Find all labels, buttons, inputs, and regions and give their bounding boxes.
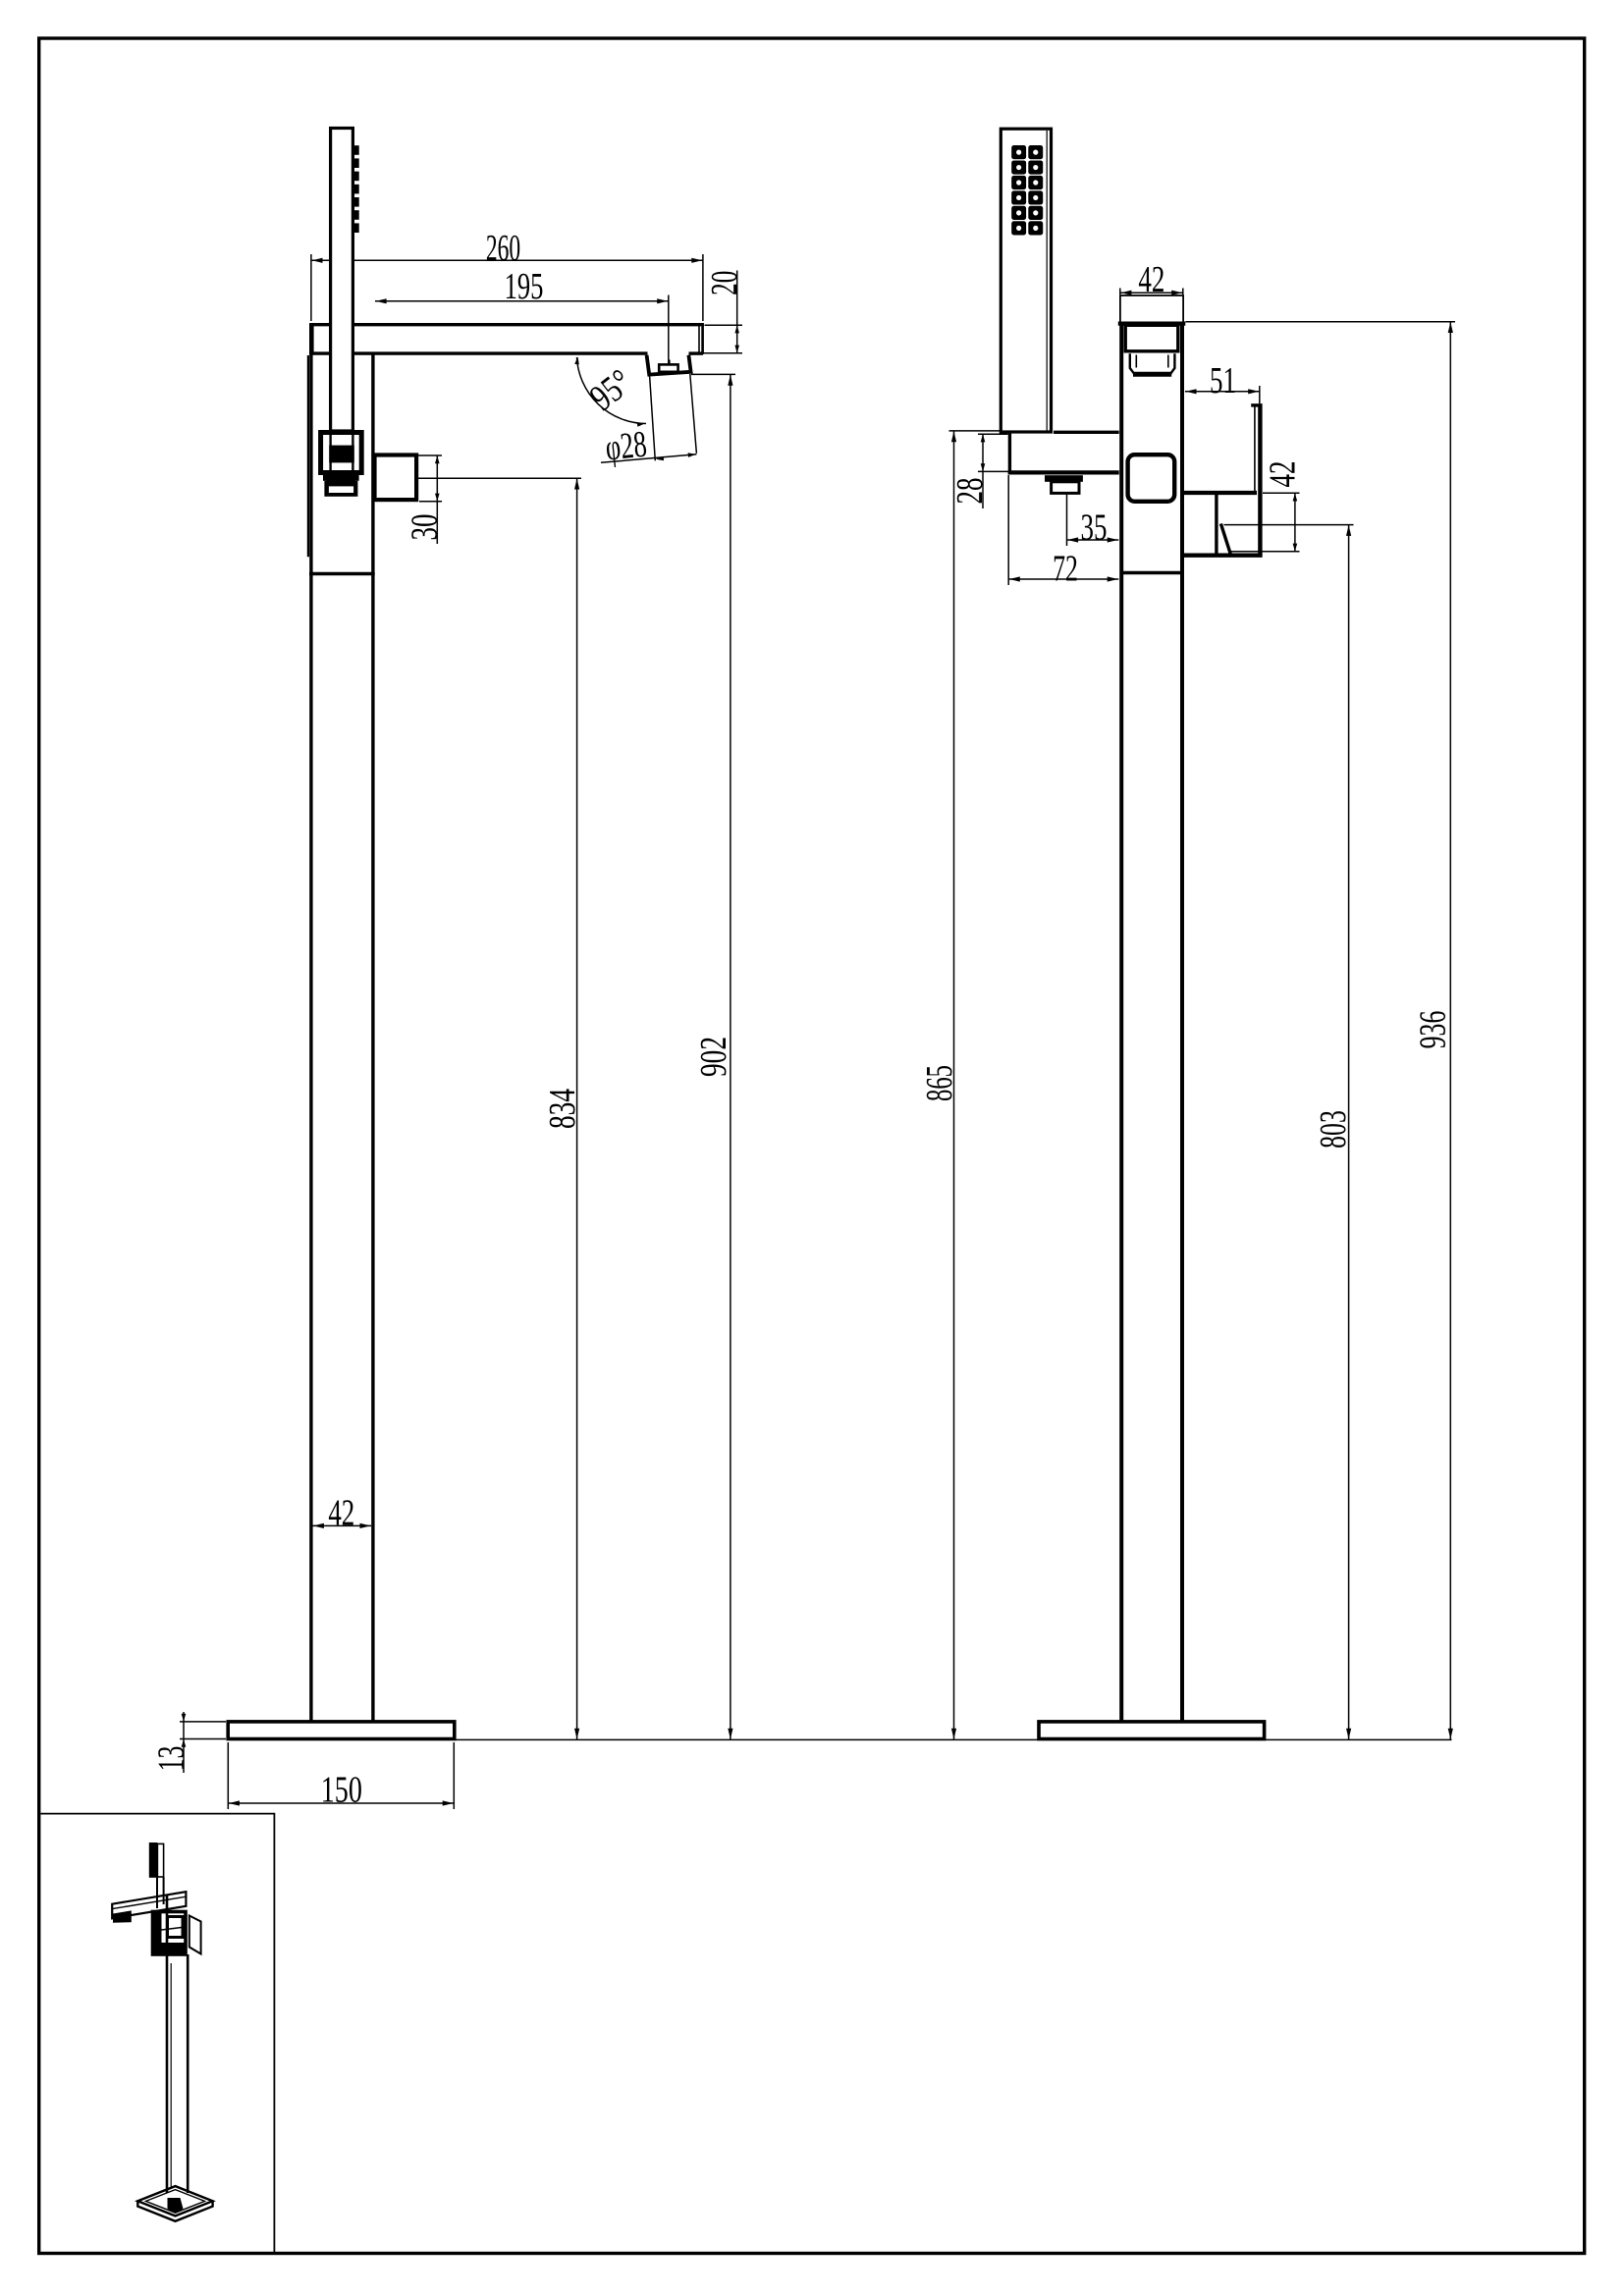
svg-text:195: 195 — [505, 267, 544, 308]
svg-text:42: 42 — [328, 1493, 354, 1534]
svg-text:42: 42 — [1263, 461, 1304, 488]
svg-text:42: 42 — [1138, 260, 1164, 301]
svg-text:803: 803 — [1313, 1110, 1354, 1148]
svg-text:35: 35 — [1081, 507, 1108, 549]
svg-text:30: 30 — [405, 514, 446, 541]
svg-text:902: 902 — [693, 1037, 734, 1077]
svg-text:20: 20 — [703, 271, 744, 295]
svg-text:834: 834 — [542, 1089, 583, 1129]
svg-text:51: 51 — [1210, 361, 1236, 402]
svg-text:260: 260 — [486, 227, 520, 268]
svg-text:936: 936 — [1413, 1011, 1454, 1049]
svg-text:φ28: φ28 — [604, 424, 649, 469]
svg-text:13: 13 — [151, 1746, 192, 1772]
svg-text:28: 28 — [950, 478, 992, 505]
svg-text:72: 72 — [1053, 549, 1078, 590]
svg-text:150: 150 — [321, 1770, 362, 1811]
svg-text:865: 865 — [918, 1065, 960, 1101]
